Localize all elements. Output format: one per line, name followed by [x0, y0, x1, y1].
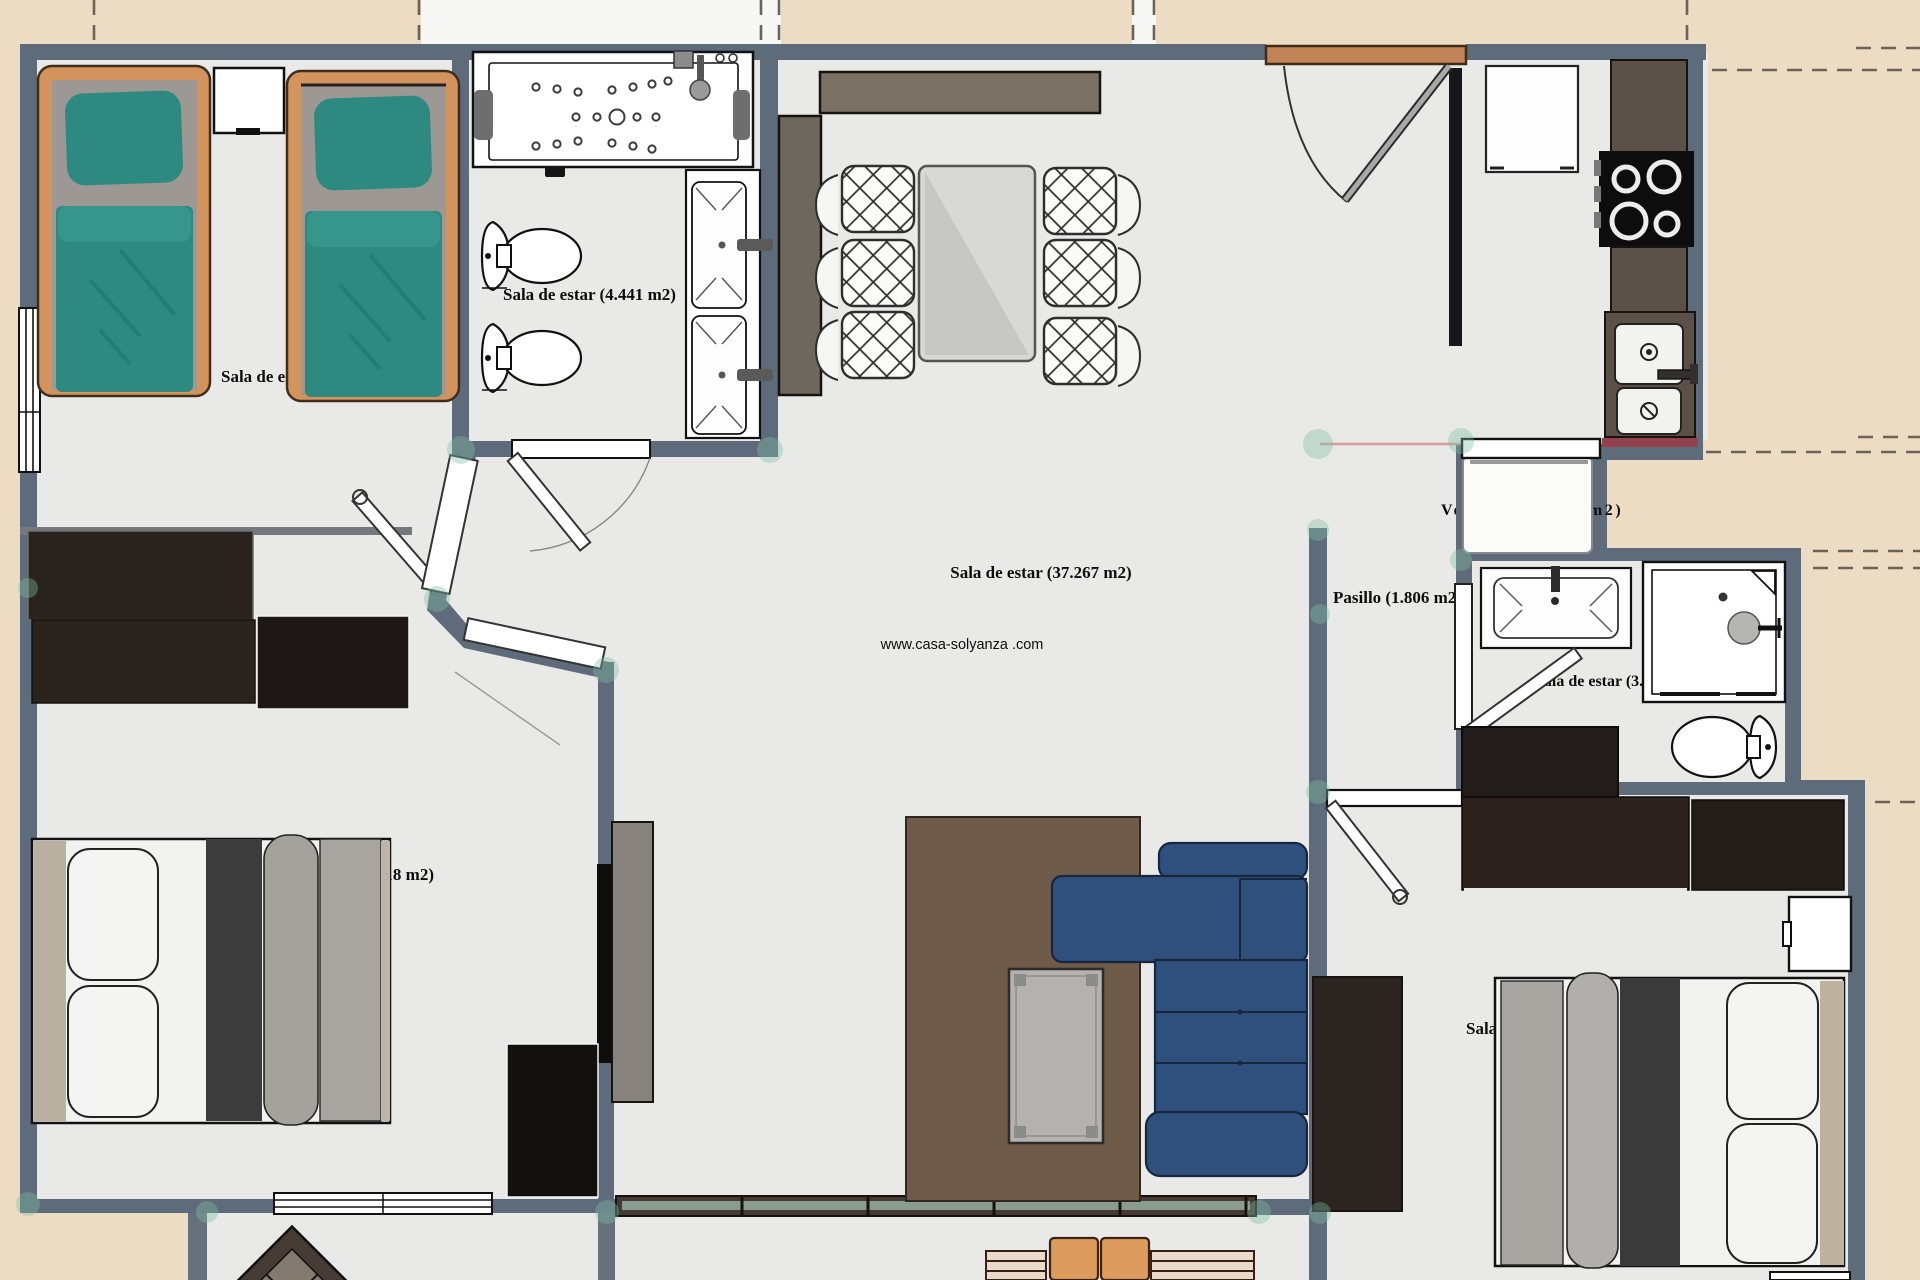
svg-text:Pasillo (1.806 m2): Pasillo (1.806 m2) — [1333, 588, 1462, 607]
svg-text:Sala de estar (4.441 m2): Sala de estar (4.441 m2) — [503, 285, 676, 304]
svg-text:www.casa-solyanza .com: www.casa-solyanza .com — [880, 637, 1044, 653]
svg-text:Sala de estar (37.267 m2): Sala de estar (37.267 m2) — [950, 563, 1131, 582]
